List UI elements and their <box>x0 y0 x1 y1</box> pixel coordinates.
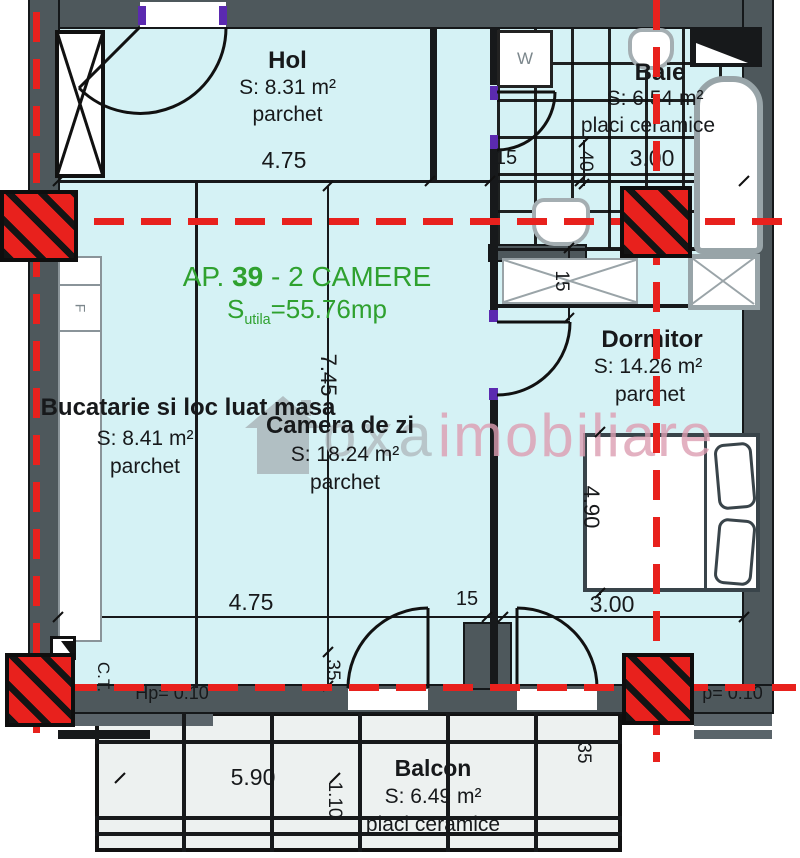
balcon-floor: placi ceramice <box>343 814 523 836</box>
washing-machine: W <box>497 30 553 88</box>
title-number: 39 <box>232 261 263 292</box>
camera-area: S: 18.24 m² <box>255 444 435 466</box>
dim-balcon-depth: 1.10 <box>322 770 344 830</box>
dim-dormitor-width: 3.00 <box>572 592 652 616</box>
title-prefix: AP. <box>183 261 232 292</box>
dim-top-wall: 15 <box>488 148 524 169</box>
dim-dormitor-height: 4.90 <box>581 475 603 539</box>
section-marker-right-top <box>620 186 692 258</box>
dim-bottom-wall: 15 <box>447 589 487 610</box>
camera-name: Camera de zi <box>240 413 440 438</box>
camera-floor: parchet <box>275 472 415 494</box>
boiler-label: C.T. <box>90 655 112 699</box>
balcon-area: S: 6.49 m² <box>353 786 513 808</box>
dim-hol-width: 4.75 <box>234 148 334 172</box>
dormitor-name: Dormitor <box>572 327 732 352</box>
section-marker-right-bottom <box>622 653 694 725</box>
shaft-box <box>55 30 105 178</box>
washing-machine-label: W <box>517 49 533 69</box>
s-sub: utila <box>244 312 270 328</box>
floor-plan: oxa imobiliare W F <box>0 0 800 858</box>
balcony-post-1 <box>182 712 186 852</box>
step-left <box>58 730 150 739</box>
wall-center-b <box>490 148 498 318</box>
dim-baie-width: 3.00 <box>612 146 692 170</box>
threshold-right <box>694 714 772 726</box>
jamb-entrance-left <box>138 6 146 25</box>
dim-baie-depth: 40 <box>573 139 595 183</box>
dim-hall-wall: 15 <box>549 259 571 303</box>
watermark-pink-text: imobiliare <box>438 401 715 470</box>
useful-area: Sutila=55.76mp <box>187 296 427 328</box>
baie-floor: placi ceramice <box>558 115 738 137</box>
section-marker-left-top <box>0 190 78 262</box>
jamb-baie-top <box>490 86 498 100</box>
bucatarie-area: S: 8.41 m² <box>65 428 225 450</box>
threshold-left <box>58 714 213 726</box>
balcony-door-opening-left <box>348 689 428 710</box>
pillow-top <box>713 441 757 510</box>
wall-pier <box>465 624 510 688</box>
balcon-name: Balcon <box>353 756 513 780</box>
hol-floor: parchet <box>210 104 365 126</box>
step-right <box>694 730 772 739</box>
fridge: F <box>58 284 102 332</box>
s-label: S <box>227 294 244 324</box>
section-marker-left-bottom <box>5 653 75 727</box>
balcony-door-opening-right <box>517 689 597 710</box>
hol-area: S: 8.31 m² <box>195 77 380 99</box>
fridge-label: F <box>72 304 88 313</box>
balcony-post-5 <box>534 712 538 852</box>
entrance-opening <box>140 2 226 27</box>
dim-living-height: 7.45 <box>318 351 340 399</box>
dormitor-floor: parchet <box>580 384 720 406</box>
jamb-dormitor-top <box>489 310 498 322</box>
wall-hol-south <box>58 180 744 183</box>
red-axis-vertical-left <box>33 12 40 733</box>
pillow-bottom <box>713 517 757 586</box>
s-value: =55.76mp <box>271 294 387 324</box>
red-axis-vertical-right <box>653 0 660 762</box>
baie-name: Baie <box>600 60 720 85</box>
jamb-entrance-right <box>219 6 227 25</box>
hol-name: Hol <box>210 48 365 73</box>
dormitor-area: S: 14.26 m² <box>568 356 728 378</box>
dim-line-bottom <box>58 616 744 618</box>
apartment-title: AP. 39 - 2 CAMERE <box>157 262 457 291</box>
shower-tray <box>688 254 760 310</box>
wall-hol-east <box>430 27 437 183</box>
dim-wall-right: 35 <box>571 731 593 775</box>
dim-balcon-width: 5.90 <box>203 765 303 789</box>
dim-living-width: 4.75 <box>201 590 301 614</box>
bucatarie-floor: parchet <box>75 456 215 478</box>
title-suffix: - 2 CAMERE <box>263 261 431 292</box>
